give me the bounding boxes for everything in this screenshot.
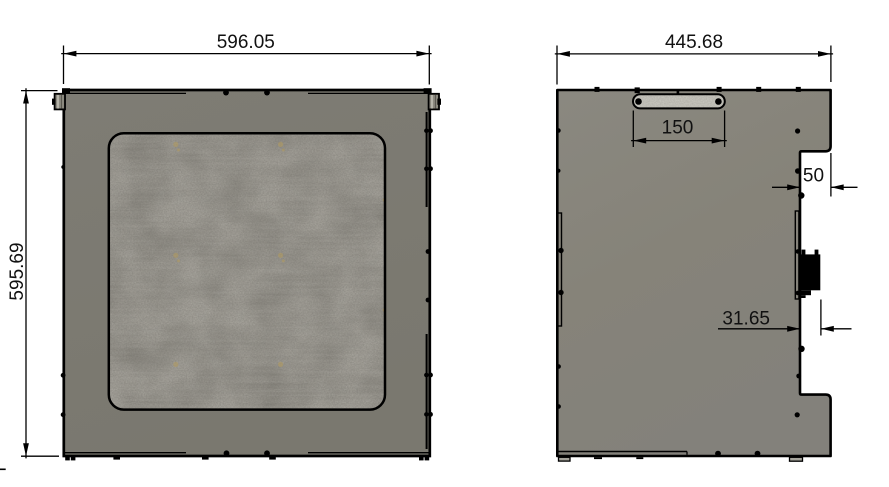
- svg-text:150: 150: [662, 118, 694, 139]
- svg-text:31.65: 31.65: [722, 308, 770, 329]
- svg-text:596.05: 596.05: [217, 32, 275, 53]
- svg-text:50: 50: [803, 166, 824, 187]
- svg-text:595.69: 595.69: [7, 242, 28, 300]
- svg-text:445.68: 445.68: [665, 32, 723, 53]
